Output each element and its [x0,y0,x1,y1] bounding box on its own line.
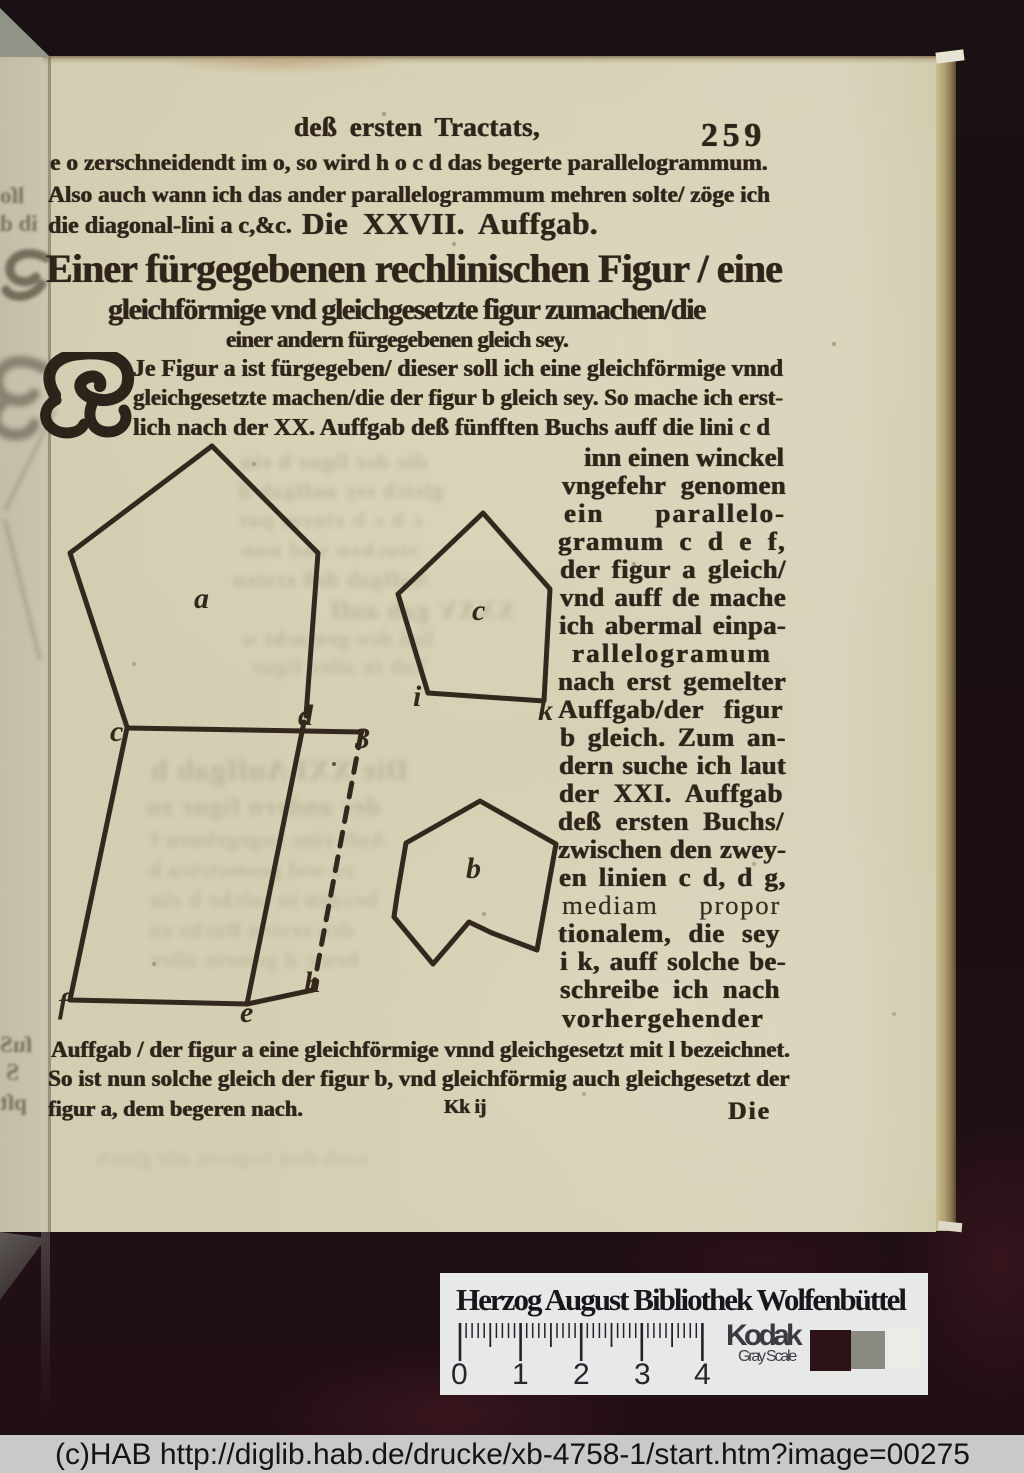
svg-text:0: 0 [451,1358,468,1391]
svg-text:4: 4 [694,1358,711,1391]
svg-text:e: e [240,996,253,1029]
svg-text:c: c [110,715,123,748]
svg-text:h: h [304,966,321,999]
svg-text:f: f [58,987,71,1020]
svg-text:1: 1 [512,1358,529,1391]
svg-text:c: c [472,594,485,627]
svg-text:i: i [413,680,422,713]
svg-text:3: 3 [634,1358,651,1391]
svg-text:b: b [466,852,481,885]
svg-text:2: 2 [573,1358,590,1391]
svg-text:3: 3 [354,722,370,755]
svg-text:k: k [538,694,553,727]
svg-text:a: a [194,582,209,615]
svg-text:d: d [298,699,314,732]
